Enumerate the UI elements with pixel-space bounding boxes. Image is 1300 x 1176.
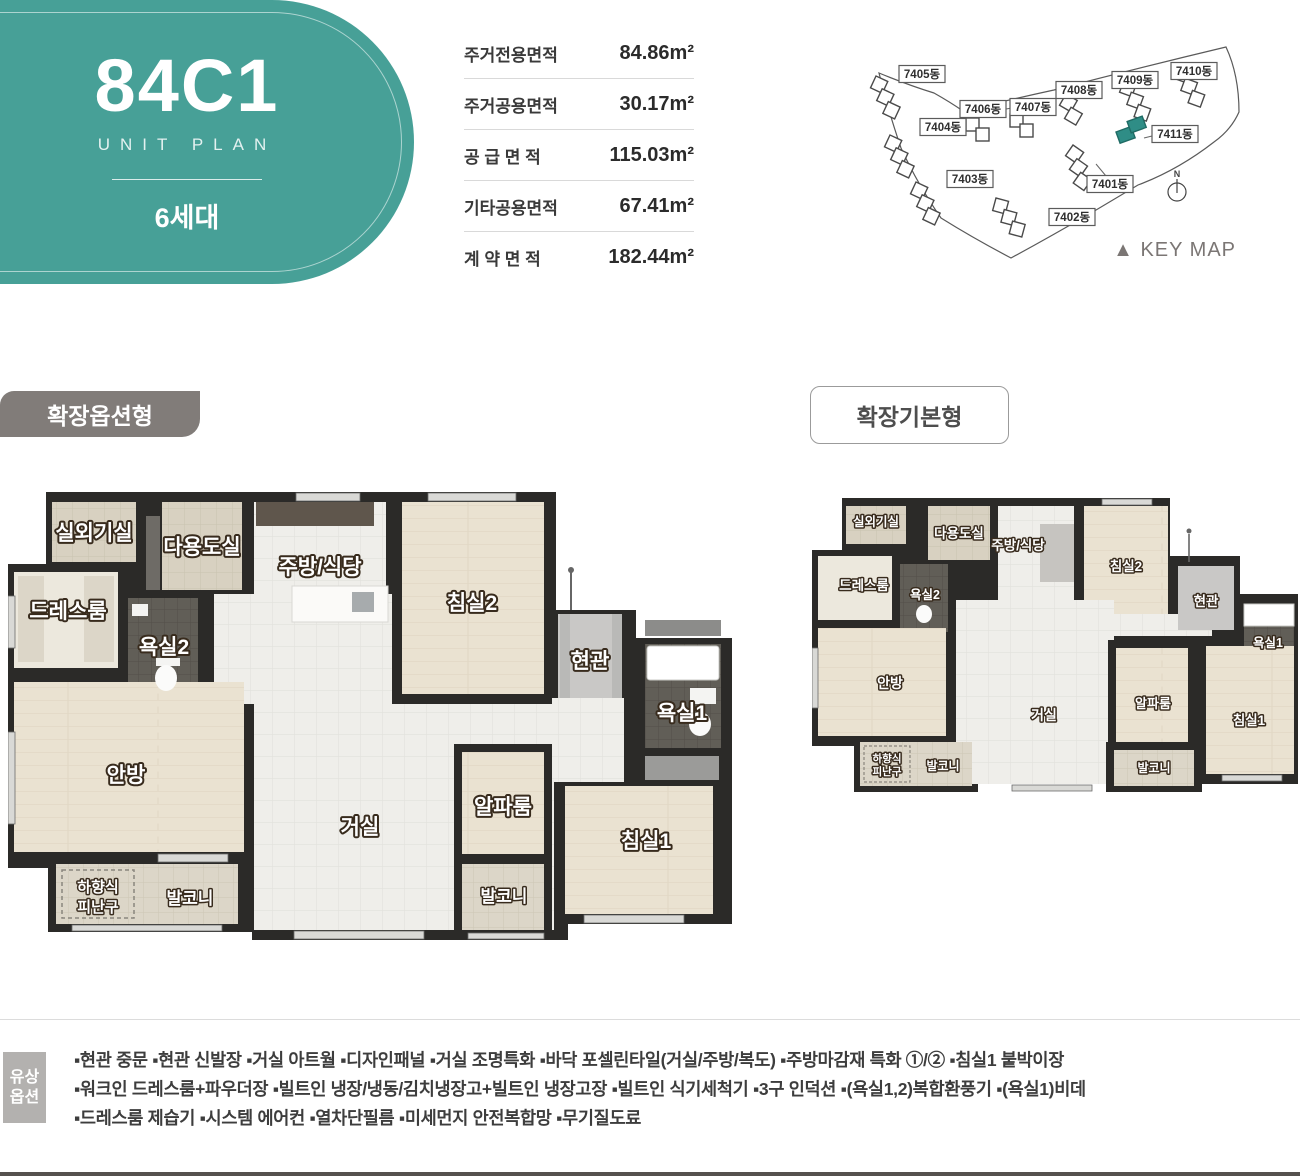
room-label: 발코니 bbox=[167, 889, 214, 908]
household-count: 6세대 bbox=[155, 196, 220, 235]
room-label: 발코니 bbox=[481, 887, 528, 906]
window bbox=[8, 732, 15, 824]
area-label: 기타공용면적 bbox=[464, 194, 558, 219]
entry-arrow-dot bbox=[568, 567, 574, 573]
window bbox=[468, 933, 544, 939]
kitchen-sink bbox=[352, 592, 374, 612]
leader-line bbox=[1096, 164, 1106, 176]
table-row: 주거공용면적 30.17m² bbox=[464, 79, 694, 130]
unit-badge: 84C1 UNIT PLAN 6세대 bbox=[0, 0, 414, 284]
building-7411-highlighted bbox=[1114, 116, 1148, 143]
room-label: 발코니 bbox=[926, 758, 959, 773]
area-value: 67.41m² bbox=[620, 195, 695, 218]
room-bedroom1 bbox=[1206, 646, 1294, 774]
leader-line bbox=[1144, 136, 1152, 138]
window bbox=[8, 596, 15, 648]
bedroom1-closet bbox=[645, 756, 719, 780]
room-label: 욕실1 bbox=[657, 702, 708, 725]
svg-text:7405동: 7405동 bbox=[904, 68, 941, 81]
kitchen-counter bbox=[1040, 524, 1074, 582]
kitchen-counter bbox=[256, 502, 374, 526]
building-label-7407: 7407동 bbox=[1010, 99, 1056, 116]
building-label-7406: 7406동 bbox=[960, 101, 1006, 118]
badge-divider bbox=[112, 179, 262, 180]
room-label: 다용도실 bbox=[163, 536, 240, 559]
unit-plan-page: 84C1 UNIT PLAN 6세대 주거전용면적 84.86m² 주거공용면적… bbox=[0, 0, 1300, 1176]
room-label: 거실 bbox=[341, 816, 380, 839]
room-label: 발코니 bbox=[1137, 760, 1170, 775]
paid-options-tag: 유상 옵션 bbox=[3, 1052, 46, 1123]
table-row: 공 급 면 적 115.03m² bbox=[464, 130, 694, 181]
area-value: 84.86m² bbox=[620, 42, 695, 65]
window bbox=[812, 648, 818, 708]
building-label-7402: 7402동 bbox=[1049, 209, 1095, 226]
room-label: 주방/식당 bbox=[278, 556, 361, 579]
room-label: 드레스룸 bbox=[839, 578, 889, 593]
room-label: 침실1 bbox=[621, 830, 672, 853]
svg-text:7408동: 7408동 bbox=[1061, 84, 1098, 97]
room-label: 실외기실 bbox=[55, 522, 132, 545]
building-label-7403: 7403동 bbox=[947, 171, 993, 188]
bath2-toilet bbox=[916, 605, 932, 623]
area-table: 주거전용면적 84.86m² 주거공용면적 30.17m² 공 급 면 적 11… bbox=[464, 28, 694, 282]
north-compass: N bbox=[1168, 169, 1186, 201]
svg-text:7404동: 7404동 bbox=[925, 121, 962, 134]
bottom-edge-bar bbox=[0, 1172, 1300, 1176]
building-label-7411: 7411동 bbox=[1152, 126, 1198, 143]
room-label: 침실1 bbox=[1233, 713, 1266, 728]
room-label: 하향식 bbox=[873, 752, 902, 765]
room-label: 하향식 bbox=[77, 879, 118, 896]
bathtub bbox=[1244, 604, 1294, 626]
building-label-7405: 7405동 bbox=[899, 66, 945, 83]
room-living bbox=[956, 600, 1114, 784]
area-label: 계 약 면 적 bbox=[464, 245, 541, 270]
room-alpha bbox=[1116, 648, 1188, 742]
window bbox=[584, 915, 684, 923]
table-row: 기타공용면적 67.41m² bbox=[464, 181, 694, 232]
room-label: 욕실2 bbox=[910, 587, 940, 602]
bathtub bbox=[647, 646, 719, 680]
table-row: 계 약 면 적 182.44m² bbox=[464, 232, 694, 282]
paid-options-list: ▪현관 중문 ▪현관 신발장 ▪거실 아트월 ▪디자인패널 ▪거실 조명특화 ▪… bbox=[74, 1046, 1296, 1133]
key-map: 7405동 7410동 7409동 7408동 7406동 7407동 7404… bbox=[848, 30, 1278, 280]
room-label: 드레스룸 bbox=[29, 600, 106, 623]
window bbox=[1012, 785, 1092, 791]
hallway bbox=[552, 698, 624, 782]
room-label: 욕실1 bbox=[1253, 635, 1283, 650]
svg-text:N: N bbox=[1174, 169, 1181, 179]
svg-text:7403동: 7403동 bbox=[952, 173, 989, 186]
entry-arrow-dot bbox=[1187, 529, 1192, 534]
entrance-closet bbox=[612, 614, 622, 698]
building-label-7409: 7409동 bbox=[1112, 72, 1158, 89]
building-7407 bbox=[1010, 114, 1033, 137]
building-7406 bbox=[966, 118, 989, 141]
room-label: 알파룸 bbox=[1135, 696, 1171, 711]
window bbox=[1222, 775, 1282, 781]
unit-badge-content: 84C1 UNIT PLAN 6세대 bbox=[22, 49, 352, 235]
footer-divider bbox=[0, 1019, 1300, 1020]
window bbox=[294, 931, 424, 939]
room-label: 다용도실 bbox=[934, 526, 984, 541]
room-label: 거실 bbox=[1031, 707, 1057, 723]
area-label: 주거공용면적 bbox=[464, 92, 558, 117]
room-label: 침실2 bbox=[447, 592, 497, 615]
window bbox=[158, 854, 228, 862]
building-7402 bbox=[988, 198, 1030, 237]
room-label: 피난구 bbox=[873, 765, 902, 778]
building-label-7404: 7404동 bbox=[920, 119, 966, 136]
area-value: 30.17m² bbox=[620, 93, 695, 116]
paid-options-tag-line1: 유상 bbox=[10, 1068, 39, 1088]
svg-text:7402동: 7402동 bbox=[1054, 211, 1091, 224]
bath2-sink bbox=[132, 604, 148, 616]
entrance-closet bbox=[560, 614, 570, 698]
paid-options-line: ▪드레스룸 제습기 ▪시스템 에어컨 ▪열차단필름 ▪미세먼지 안전복합망 ▪무… bbox=[74, 1104, 1296, 1133]
bath2-toilet bbox=[155, 665, 177, 691]
bath2-tank bbox=[156, 658, 180, 666]
room-label: 침실2 bbox=[1110, 559, 1142, 574]
window bbox=[1102, 499, 1152, 505]
window bbox=[428, 493, 516, 501]
room-label: 현관 bbox=[1194, 593, 1219, 609]
refrigerator bbox=[146, 516, 160, 590]
floorplan-expanded-basic: 실외기실 다용도실 주방/식당 침실2 드레스룸 욕실2 현관 욕실1 안방 거… bbox=[812, 498, 1300, 798]
bath1-storage bbox=[645, 620, 721, 636]
section-label-expanded-basic: 확장기본형 bbox=[810, 386, 1009, 444]
room-label: 현관 bbox=[571, 650, 610, 673]
area-label: 주거전용면적 bbox=[464, 41, 558, 66]
table-row: 주거전용면적 84.86m² bbox=[464, 28, 694, 79]
window bbox=[72, 925, 222, 931]
room-label: 욕실2 bbox=[139, 636, 189, 659]
keymap-caption: ▲ KEY MAP bbox=[1113, 239, 1236, 261]
paid-options-line: ▪현관 중문 ▪현관 신발장 ▪거실 아트월 ▪디자인패널 ▪거실 조명특화 ▪… bbox=[74, 1046, 1296, 1075]
room-label: 안방 bbox=[107, 764, 146, 787]
room-label: 주방/식당 bbox=[991, 537, 1045, 553]
window bbox=[296, 493, 360, 501]
svg-text:7401동: 7401동 bbox=[1092, 178, 1129, 191]
area-value: 182.44m² bbox=[608, 246, 694, 269]
floorplan-expanded-option: 실외기실 다용도실 주방/식당 침실2 드레스룸 욕실2 현관 욕실1 안방 거… bbox=[8, 492, 742, 980]
room-label: 실외기실 bbox=[853, 514, 899, 529]
svg-text:7410동: 7410동 bbox=[1176, 65, 1213, 78]
unit-subtitle: UNIT PLAN bbox=[98, 135, 277, 155]
room-label: 안방 bbox=[877, 675, 903, 691]
building-label-7408: 7408동 bbox=[1056, 82, 1102, 99]
svg-text:7409동: 7409동 bbox=[1117, 74, 1154, 87]
svg-text:7406동: 7406동 bbox=[965, 103, 1002, 116]
svg-text:7407동: 7407동 bbox=[1015, 101, 1052, 114]
section-label-expanded-option: 확장옵션형 bbox=[0, 391, 200, 437]
building-7404 bbox=[877, 135, 922, 178]
room-label: 피난구 bbox=[77, 899, 119, 916]
area-value: 115.03m² bbox=[609, 144, 694, 167]
building-label-7401: 7401동 bbox=[1087, 176, 1133, 193]
room-label: 알파룸 bbox=[474, 796, 532, 819]
unit-name: 84C1 bbox=[95, 49, 280, 123]
paid-options-tag-line2: 옵션 bbox=[10, 1088, 39, 1108]
area-label: 공 급 면 적 bbox=[464, 143, 541, 168]
building-label-7410: 7410동 bbox=[1171, 63, 1217, 80]
paid-options-line: ▪워크인 드레스룸+파우더장 ▪빌트인 냉장/냉동/김치냉장고+빌트인 냉장고장… bbox=[74, 1075, 1296, 1104]
svg-text:7411동: 7411동 bbox=[1157, 128, 1193, 141]
